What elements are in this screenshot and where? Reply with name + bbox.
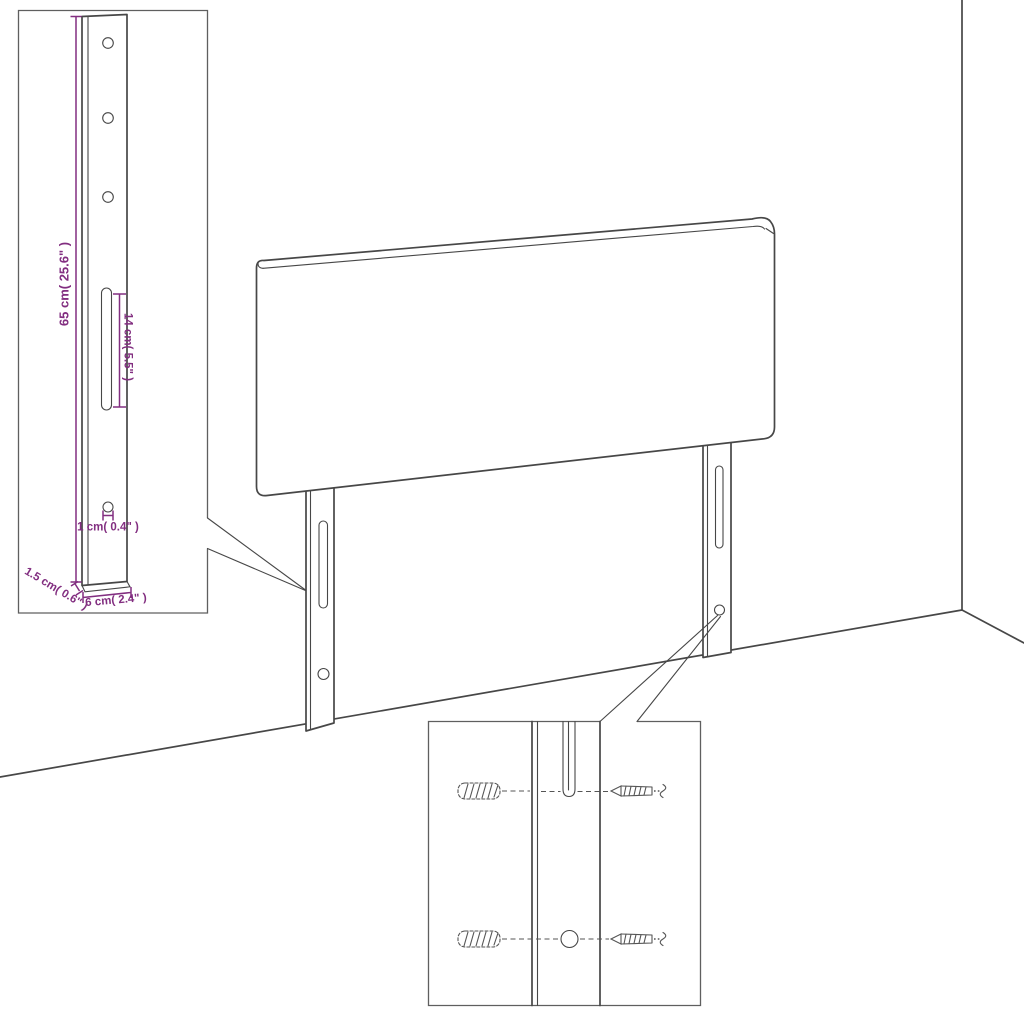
floor-right-line xyxy=(962,610,1024,643)
leg-pointer-upper-line xyxy=(208,518,306,590)
leg-detail-bar xyxy=(82,15,130,592)
hardware-pointer-left-line xyxy=(600,616,718,722)
headboard-panel xyxy=(257,218,775,496)
leg-detail-pointer xyxy=(208,518,306,591)
panel-outline xyxy=(257,218,775,496)
hardware-pointer-right-line xyxy=(637,617,721,722)
leg-pointer-lower-line xyxy=(208,549,306,591)
dim-height-label: 65 cm( 25.6" ) xyxy=(57,242,72,326)
right-leg xyxy=(703,429,731,658)
diagram-svg: 65 cm( 25.6" ) 14 cm( 5.5" ) 1 cm( 0.4" … xyxy=(0,0,1024,1024)
hardware-detail-inset xyxy=(429,722,701,1006)
hardware-inset-background xyxy=(429,722,701,1006)
leg-detail-inset: 65 cm( 25.6" ) 14 cm( 5.5" ) 1 cm( 0.4" … xyxy=(19,11,208,614)
dim-hole-label: 1 cm( 0.4" ) xyxy=(77,522,139,534)
assembly-diagram-canvas: 65 cm( 25.6" ) 14 cm( 5.5" ) 1 cm( 0.4" … xyxy=(0,0,1024,1024)
dim-slot-label: 14 cm( 5.5" ) xyxy=(122,313,134,381)
left-leg xyxy=(306,475,334,731)
